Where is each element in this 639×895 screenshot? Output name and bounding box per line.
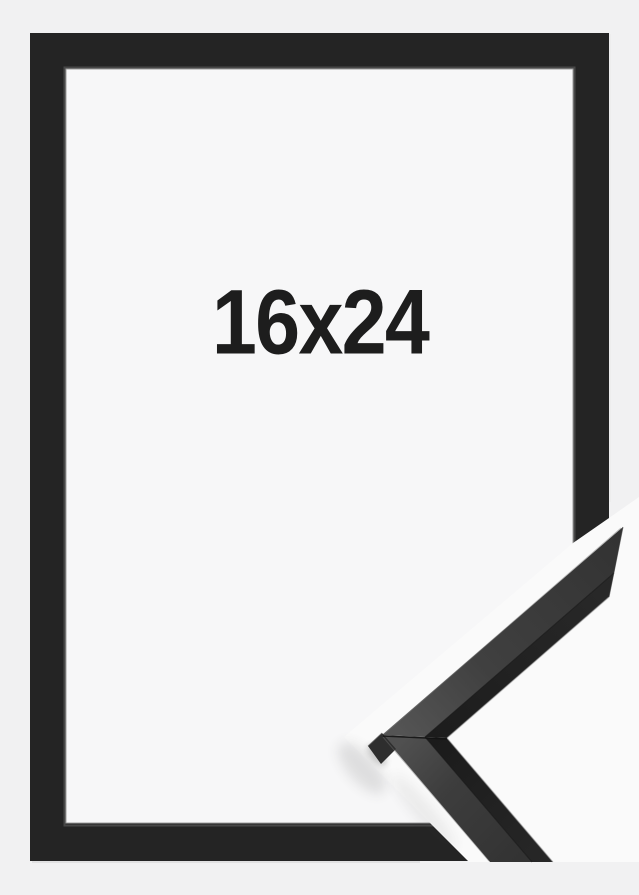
product-image-canvas <box>0 0 639 895</box>
size-label: 16x24 <box>212 276 428 368</box>
product-photo: 16x24 <box>0 0 639 895</box>
